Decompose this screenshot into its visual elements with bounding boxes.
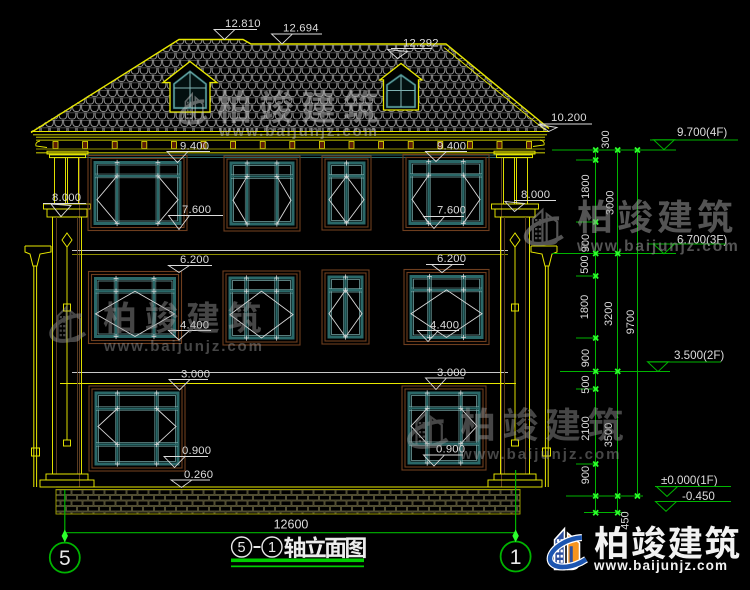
svg-text:500: 500 <box>580 375 592 393</box>
svg-text:0.900: 0.900 <box>182 445 211 457</box>
svg-text:3200: 3200 <box>603 301 615 325</box>
svg-text:8.000: 8.000 <box>521 189 550 201</box>
svg-text:12.292: 12.292 <box>403 38 439 50</box>
svg-text:9.700(4F): 9.700(4F) <box>677 126 727 139</box>
svg-text:3.000: 3.000 <box>437 367 466 379</box>
svg-text:300: 300 <box>600 130 612 148</box>
svg-text:3.500(2F): 3.500(2F) <box>674 349 724 362</box>
svg-text:6.200: 6.200 <box>180 254 209 266</box>
svg-text:3.000: 3.000 <box>181 369 210 381</box>
svg-text:www.baijunjz.com: www.baijunjz.com <box>103 338 264 355</box>
svg-text:5: 5 <box>59 547 71 570</box>
svg-text:4.400: 4.400 <box>430 320 459 332</box>
svg-text:12600: 12600 <box>274 518 309 532</box>
svg-text:1800: 1800 <box>579 295 591 319</box>
svg-text:0.260: 0.260 <box>184 469 213 481</box>
svg-text:1: 1 <box>268 540 276 556</box>
svg-text:9.400: 9.400 <box>437 141 466 153</box>
svg-text:10.200: 10.200 <box>551 112 587 124</box>
svg-text:8.000: 8.000 <box>52 192 81 204</box>
svg-text:900: 900 <box>580 466 592 484</box>
svg-text:450: 450 <box>620 511 632 529</box>
svg-text:5: 5 <box>238 540 246 556</box>
svg-text:7.600: 7.600 <box>182 204 211 216</box>
svg-text:500: 500 <box>579 255 591 273</box>
svg-text:9700: 9700 <box>625 310 637 334</box>
svg-text:7.600: 7.600 <box>437 205 466 217</box>
svg-text:www.baijunjz.com: www.baijunjz.com <box>593 558 728 573</box>
svg-text:9.400: 9.400 <box>180 141 209 153</box>
svg-text:6.200: 6.200 <box>437 253 466 265</box>
svg-text:www.baijunjz.com: www.baijunjz.com <box>459 446 621 463</box>
svg-text:12.810: 12.810 <box>225 18 261 30</box>
svg-text:12.694: 12.694 <box>283 23 319 35</box>
svg-text:2100: 2100 <box>580 416 592 440</box>
svg-text:900: 900 <box>580 349 592 367</box>
svg-text:www.baijunjz.com: www.baijunjz.com <box>218 123 379 140</box>
svg-text:1: 1 <box>510 546 522 569</box>
svg-text:1800: 1800 <box>580 174 592 198</box>
svg-text:±0.000(1F): ±0.000(1F) <box>661 474 718 487</box>
svg-text:www.baijunjz.com: www.baijunjz.com <box>576 238 740 255</box>
